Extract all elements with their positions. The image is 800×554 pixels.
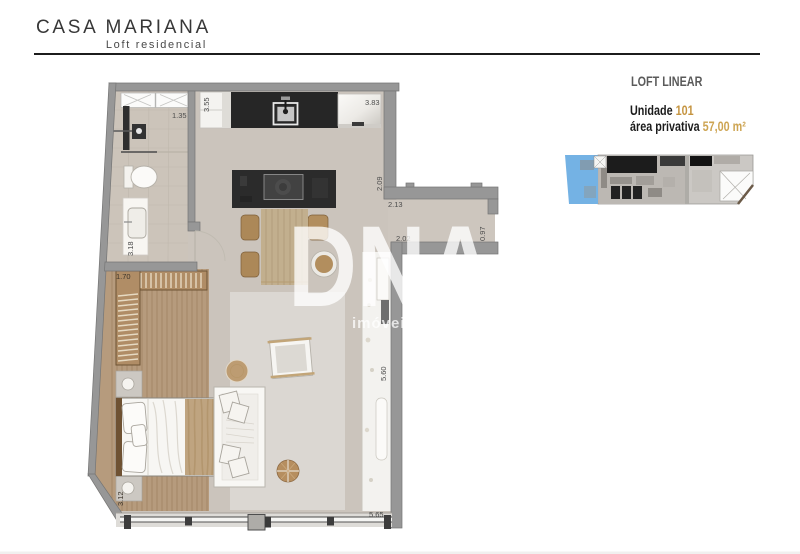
svg-text:5.65: 5.65 [369, 510, 384, 519]
svg-text:5.60: 5.60 [379, 366, 388, 381]
svg-text:2.09: 2.09 [375, 176, 384, 191]
svg-text:1.70: 1.70 [116, 272, 131, 281]
svg-text:3.12: 3.12 [116, 491, 125, 506]
svg-text:3.55: 3.55 [202, 97, 211, 112]
svg-text:imóveis: imóveis [352, 315, 415, 332]
svg-text:3.83: 3.83 [365, 98, 380, 107]
svg-text:1.35: 1.35 [172, 111, 187, 120]
svg-text:3.18: 3.18 [126, 241, 135, 256]
svg-text:DNA: DNA [288, 203, 495, 331]
